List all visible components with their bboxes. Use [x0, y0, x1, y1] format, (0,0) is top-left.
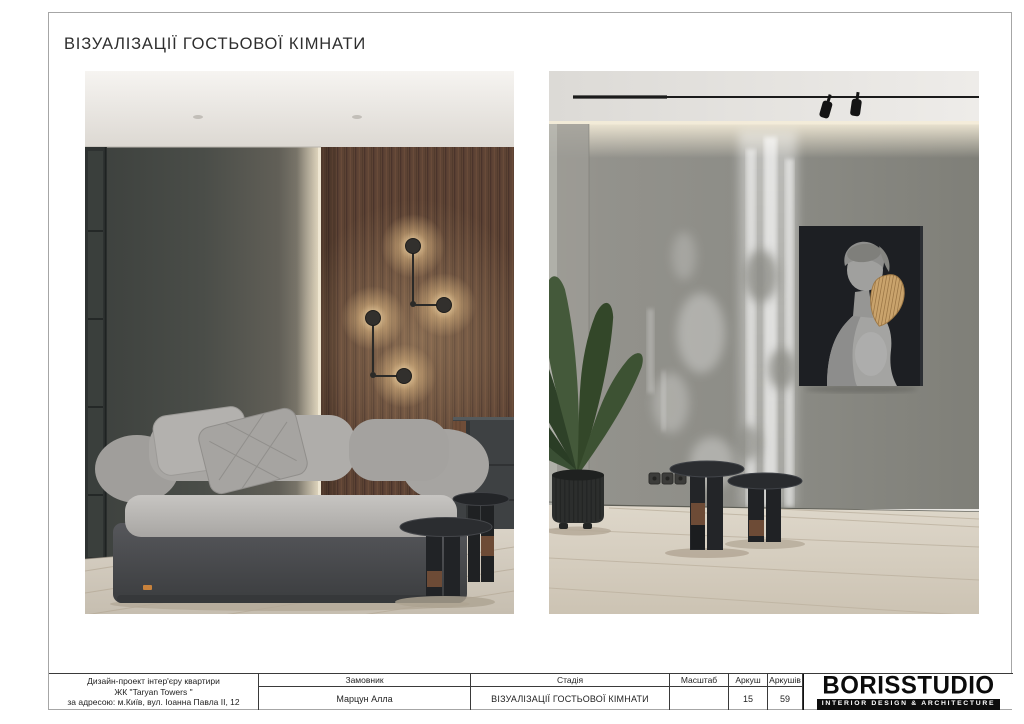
- render-art-illustration: [549, 71, 979, 614]
- sheet-value: 15: [729, 687, 768, 710]
- stage-value: ВІЗУАЛІЗАЦІЇ ГОСТЬОВОЇ КІМНАТИ: [471, 687, 670, 710]
- project-description-cell: Дизайн-проект інтер'єру квартири ЖК "Tar…: [49, 674, 259, 710]
- studio-logo: BORISSTUDIO INTERIOR DESIGN & ARCHITECTU…: [803, 674, 1013, 710]
- client-header: Замовник: [259, 674, 471, 687]
- scale-header: Масштаб: [670, 674, 729, 687]
- render-art-wall: [549, 71, 979, 614]
- project-line-1: Дизайн-проект інтер'єру квартири: [87, 676, 220, 687]
- glass-partition: [85, 147, 107, 561]
- design-sheet: ВІЗУАЛІЗАЦІЇ ГОСТЬОВОЇ КІМНАТИ: [0, 0, 1024, 724]
- brand-tag: [143, 585, 152, 590]
- render-sofa-illustration: [85, 71, 514, 614]
- title-block-table: Дизайн-проект інтер'єру квартири ЖК "Tar…: [49, 673, 1013, 709]
- sheet-header: Аркуш: [729, 674, 768, 687]
- recessed-spotlight: [193, 115, 203, 119]
- studio-logo-tagline: INTERIOR DESIGN & ARCHITECTURE: [817, 699, 1000, 710]
- page-title: ВІЗУАЛІЗАЦІЇ ГОСТЬОВОЇ КІМНАТИ: [64, 35, 366, 54]
- sheets-total-header: Аркушів: [768, 674, 803, 687]
- sheets-total-value: 59: [768, 687, 803, 710]
- render-sofa-wood-wall: [85, 71, 514, 614]
- stage-header: Стадія: [471, 674, 670, 687]
- studio-logo-name: BORISSTUDIO: [822, 674, 994, 699]
- project-line-3: за адресою: м.Київ, вул. Іоанна Павла II…: [67, 697, 239, 708]
- project-line-2: ЖК "Taryan Towers ": [114, 687, 192, 698]
- ribbed-planter: [552, 470, 604, 530]
- recessed-spotlight: [352, 115, 362, 119]
- client-value: Марцун Алла: [259, 687, 471, 710]
- cove-light-line: [549, 121, 979, 125]
- ceiling: [85, 71, 514, 148]
- bust-artwork: [799, 226, 923, 393]
- sheet-frame: ВІЗУАЛІЗАЦІЇ ГОСТЬОВОЇ КІМНАТИ: [48, 12, 1012, 710]
- scale-value: [670, 687, 729, 710]
